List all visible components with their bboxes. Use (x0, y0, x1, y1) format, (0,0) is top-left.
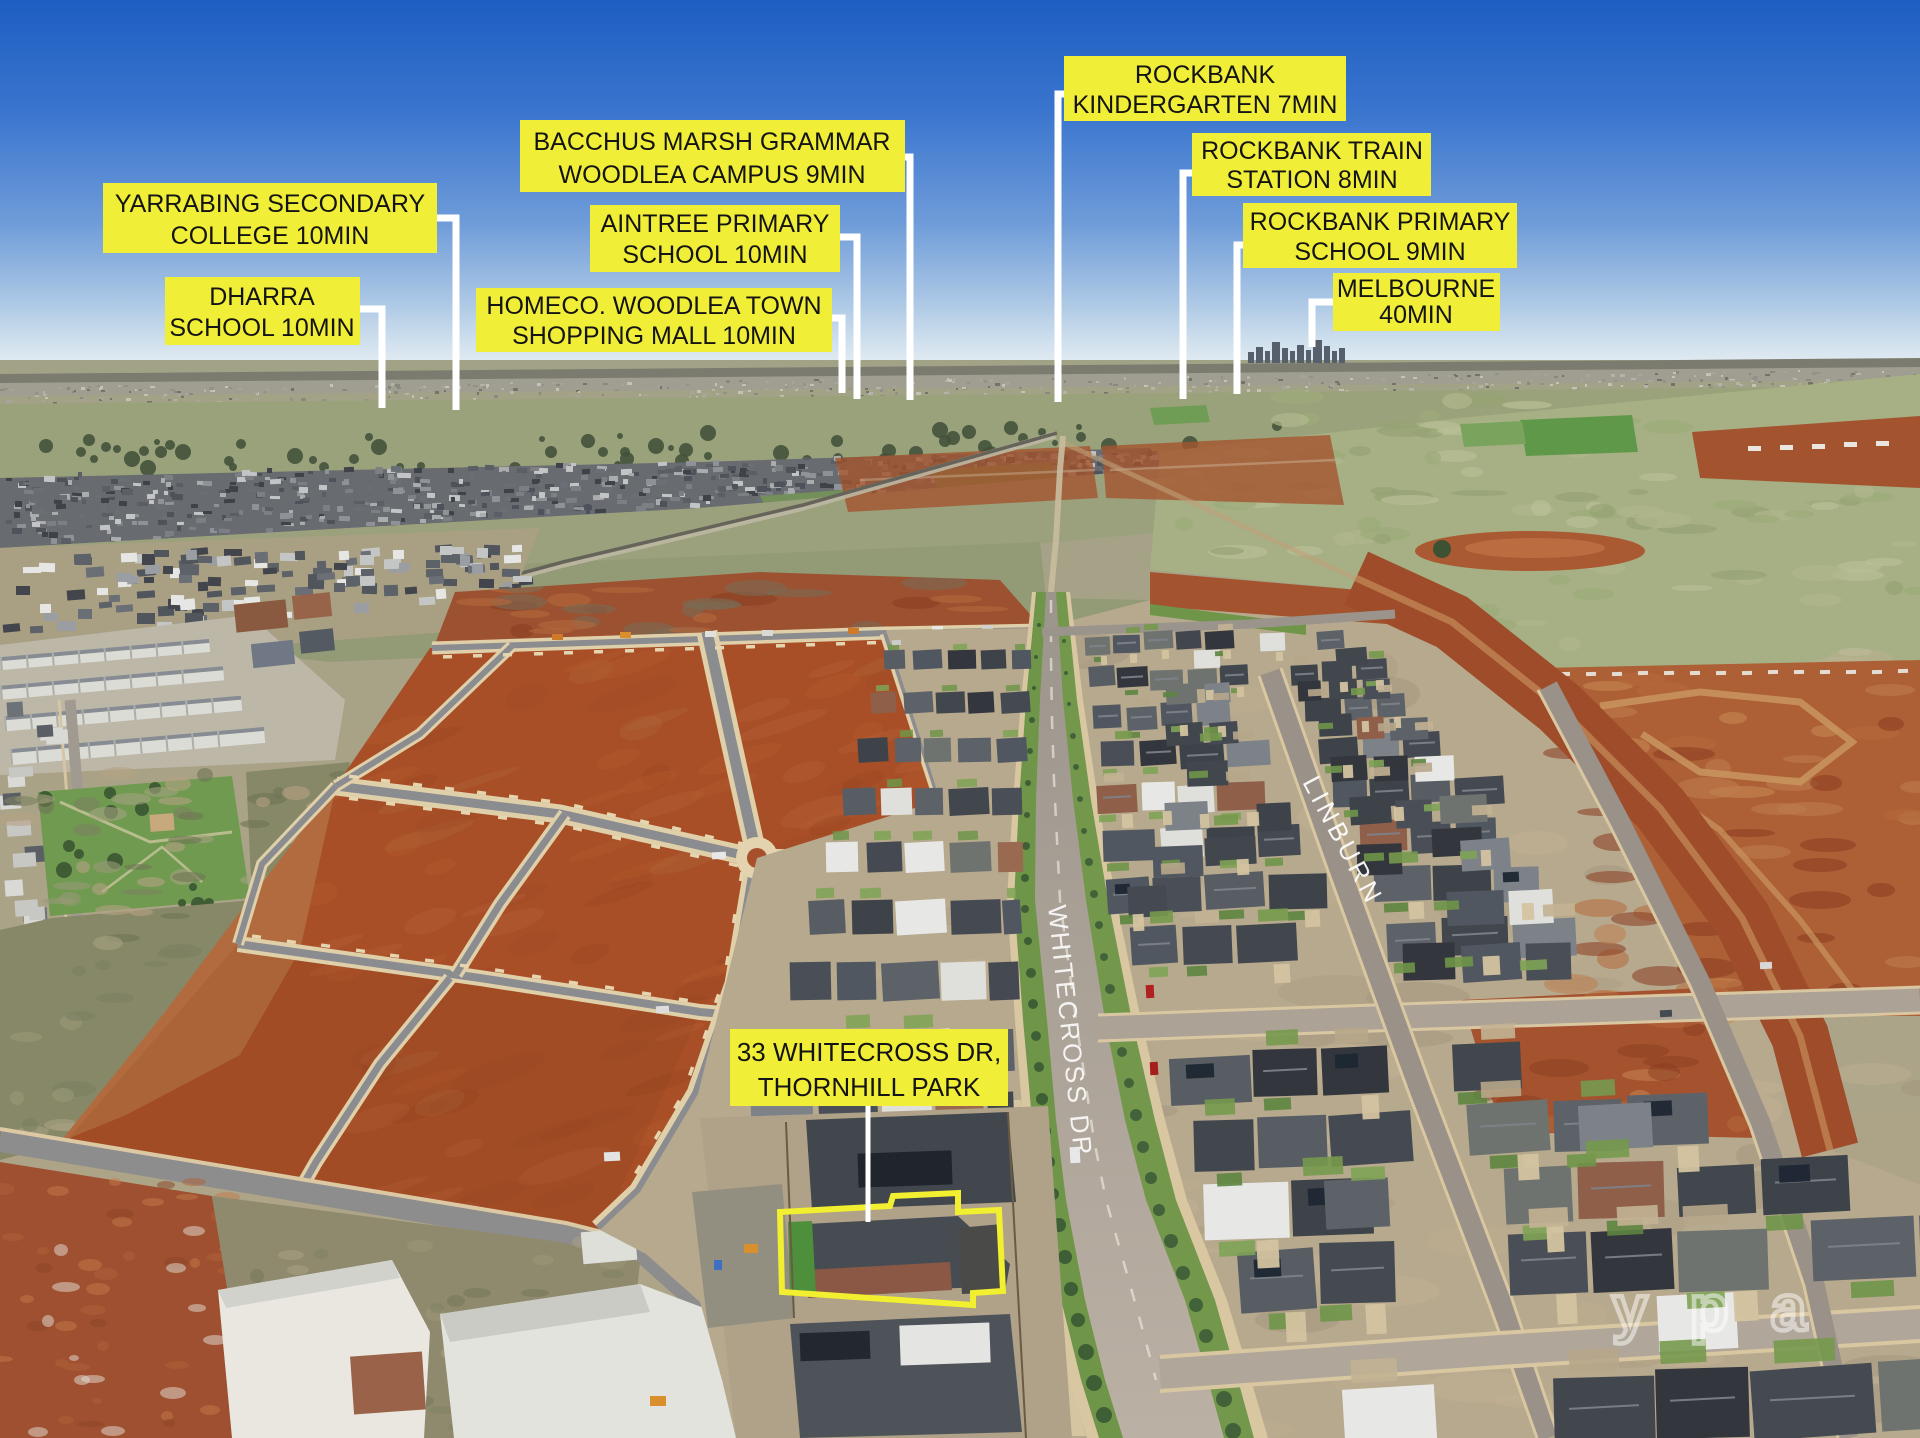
svg-text:ROCKBANK: ROCKBANK (1135, 61, 1276, 89)
svg-text:DHARRA: DHARRA (209, 283, 315, 311)
svg-text:HOMECO. WOODLEA TOWN: HOMECO. WOODLEA TOWN (486, 292, 821, 320)
svg-text:STATION 8MIN: STATION 8MIN (1226, 166, 1397, 194)
svg-text:AINTREE PRIMARY: AINTREE PRIMARY (601, 210, 830, 238)
svg-text:33 WHITECROSS DR,: 33 WHITECROSS DR, (737, 1037, 1001, 1067)
svg-text:ROCKBANK TRAIN: ROCKBANK TRAIN (1201, 137, 1423, 165)
svg-text:SCHOOL 10MIN: SCHOOL 10MIN (622, 241, 807, 269)
svg-text:SCHOOL 9MIN: SCHOOL 9MIN (1294, 238, 1465, 266)
svg-text:KINDERGARTEN 7MIN: KINDERGARTEN 7MIN (1073, 91, 1338, 119)
svg-text:COLLEGE 10MIN: COLLEGE 10MIN (171, 222, 370, 250)
svg-text:THORNHILL PARK: THORNHILL PARK (758, 1072, 981, 1102)
svg-text:ypa: ypa (1612, 1272, 1848, 1344)
svg-text:ROCKBANK PRIMARY: ROCKBANK PRIMARY (1250, 208, 1511, 236)
svg-text:WOODLEA CAMPUS 9MIN: WOODLEA CAMPUS 9MIN (559, 161, 866, 189)
svg-text:SHOPPING MALL 10MIN: SHOPPING MALL 10MIN (512, 322, 796, 350)
svg-text:YARRABING SECONDARY: YARRABING SECONDARY (115, 190, 426, 218)
svg-text:BACCHUS MARSH GRAMMAR: BACCHUS MARSH GRAMMAR (534, 128, 891, 156)
svg-text:SCHOOL 10MIN: SCHOOL 10MIN (169, 314, 354, 342)
svg-text:MELBOURNE: MELBOURNE (1337, 275, 1495, 303)
svg-text:40MIN: 40MIN (1379, 301, 1453, 329)
